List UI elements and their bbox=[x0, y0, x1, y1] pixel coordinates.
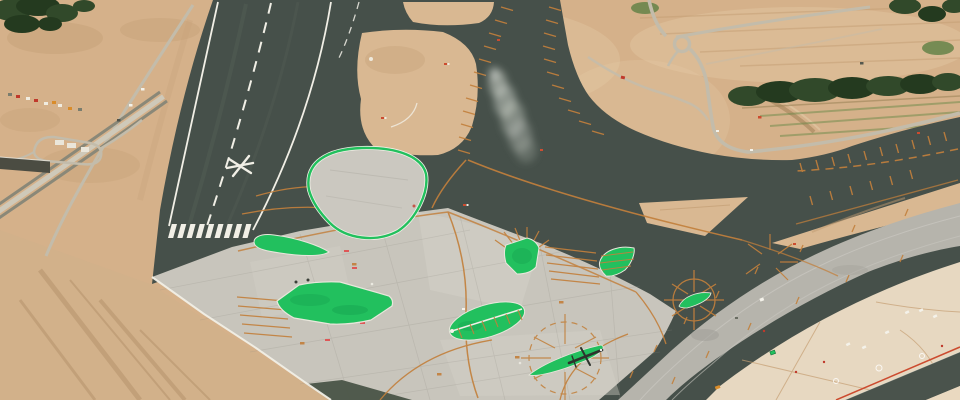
aerial-photo: Aerial photograph of a new airport runwa… bbox=[0, 0, 960, 400]
airport-aerial-svg: Aerial photograph of a new airport runwa… bbox=[0, 0, 960, 400]
